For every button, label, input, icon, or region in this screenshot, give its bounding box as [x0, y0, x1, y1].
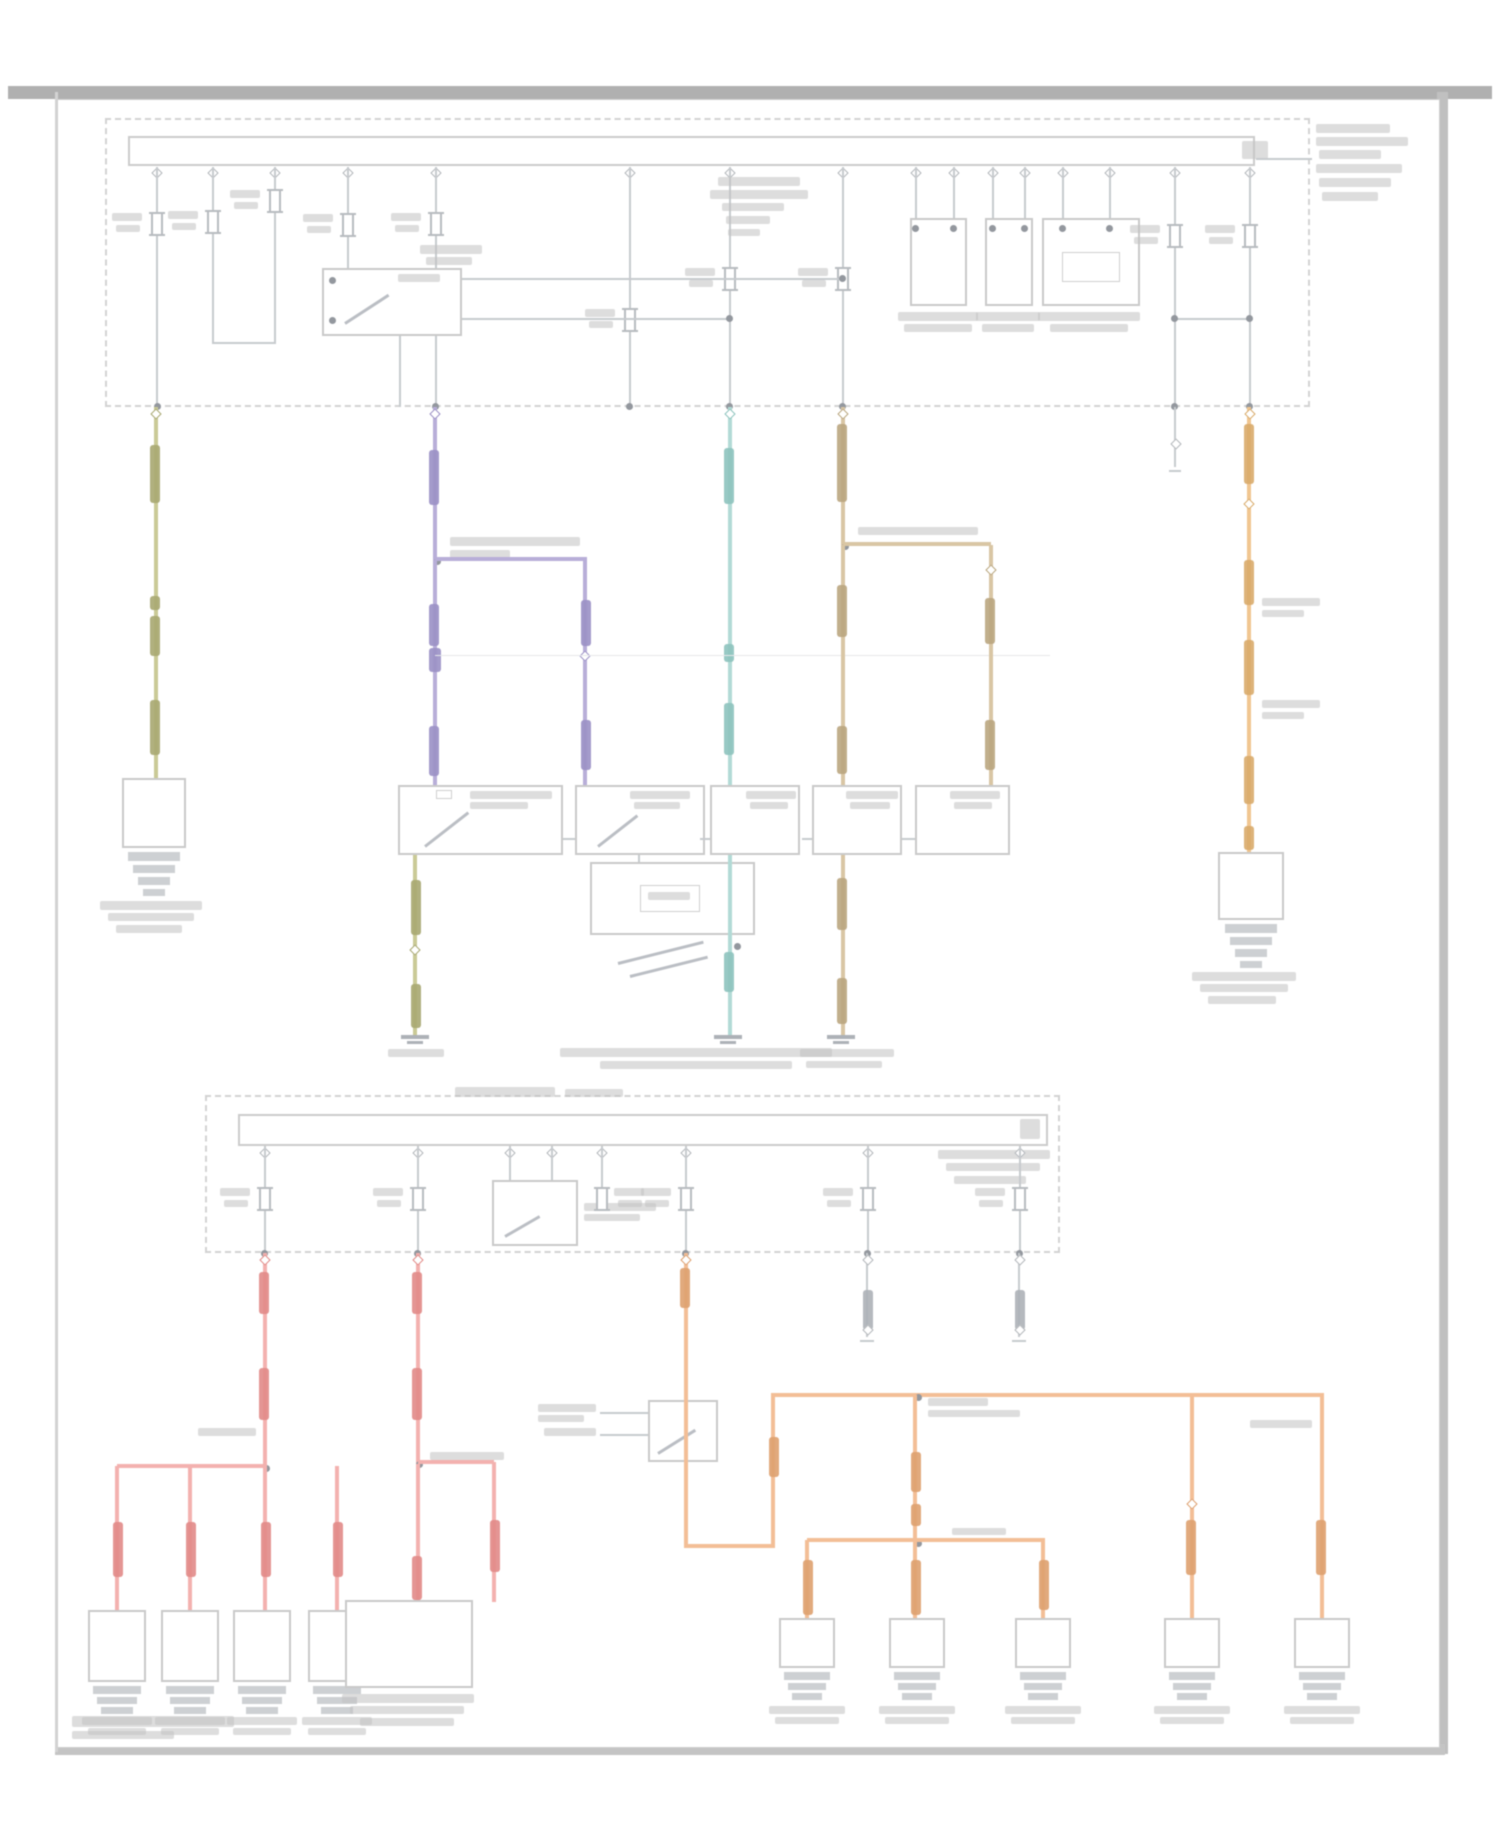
- ground-hatch: [1028, 1693, 1058, 1700]
- bottom-right-component: [1164, 1618, 1220, 1668]
- diagram-layer: [0, 0, 1500, 1828]
- wire-segment: [1174, 167, 1176, 407]
- illegible-label-text: [746, 791, 796, 799]
- wire-segment: [117, 1464, 267, 1468]
- wire-connector-sleeve: [581, 600, 591, 646]
- illegible-label-text: [689, 280, 713, 287]
- fuse-icon: [1014, 1187, 1026, 1211]
- wire-segment: [212, 167, 214, 212]
- wire-segment: [600, 1412, 648, 1414]
- wire-segment: [212, 234, 214, 344]
- illegible-label-text: [220, 1188, 250, 1196]
- splice-junction-dot: [1246, 315, 1253, 322]
- wire-connector-sleeve: [1244, 560, 1254, 605]
- illegible-label-text: [710, 190, 808, 199]
- fuse-icon: [680, 1187, 692, 1211]
- illegible-label-text: [198, 1428, 256, 1436]
- illegible-label-text: [634, 802, 680, 809]
- wire-segment: [407, 1041, 423, 1044]
- wire-connector-sleeve: [803, 1560, 813, 1615]
- illegible-label-text: [1011, 1717, 1075, 1724]
- illegible-label-text: [538, 1404, 596, 1412]
- illegible-label-text: [928, 1398, 988, 1406]
- wire-segment: [399, 336, 401, 407]
- splice-junction-dot: [839, 275, 846, 282]
- illegible-label-text: [1262, 712, 1304, 719]
- ground-hatch: [1020, 1672, 1066, 1680]
- ground-symbol: [827, 1035, 855, 1039]
- ground-hatch: [1225, 924, 1277, 933]
- wire-segment: [274, 167, 276, 189]
- illegible-label-text: [952, 1528, 1006, 1535]
- illegible-label-text: [395, 225, 419, 232]
- illegible-label-text: [589, 321, 613, 328]
- wire-segment: [902, 838, 915, 840]
- illegible-label-text: [560, 1048, 832, 1057]
- illegible-label-text: [360, 1718, 454, 1726]
- illegible-label-text: [1160, 1717, 1224, 1724]
- fuse-icon: [412, 1187, 424, 1211]
- wire-connector-sleeve: [150, 616, 160, 656]
- splice-junction-dot: [329, 317, 336, 324]
- fuse-icon: [207, 210, 219, 234]
- illegible-label-text: [750, 802, 788, 809]
- illegible-label-text: [641, 1188, 671, 1196]
- illegible-label-text: [1262, 700, 1320, 708]
- illegible-label-text: [426, 257, 472, 265]
- illegible-label-text: [950, 791, 1000, 799]
- wire-connector-sleeve: [837, 726, 847, 774]
- component-detail-box: [1062, 252, 1120, 282]
- wire-connector-sleeve: [724, 644, 734, 662]
- ground-hatch: [1177, 1693, 1207, 1700]
- fuse-icon: [624, 308, 636, 332]
- wire-segment: [274, 213, 276, 344]
- bottom-left-component: [161, 1610, 219, 1682]
- ground-hatch: [1169, 1672, 1215, 1680]
- illegible-label-text: [858, 527, 978, 535]
- wire-segment: [435, 557, 587, 561]
- bottom-left-component: [88, 1610, 146, 1682]
- wire-connector-sleeve: [490, 1520, 500, 1572]
- wire-connector-sleeve: [1244, 640, 1254, 695]
- wire-segment: [843, 542, 991, 546]
- wire-segment: [684, 1400, 688, 1462]
- wire-connector-sleeve: [1186, 1520, 1196, 1575]
- wire-segment: [462, 278, 842, 280]
- ground-hatch: [1307, 1693, 1337, 1700]
- illegible-label-text: [1319, 178, 1391, 187]
- illegible-label-text: [1038, 312, 1140, 321]
- ground-hatch: [1024, 1683, 1062, 1690]
- illegible-label-text: [726, 216, 770, 224]
- illegible-label-text: [728, 229, 760, 236]
- wire-segment: [629, 332, 631, 407]
- wire-connector-sleeve: [412, 1272, 422, 1314]
- wire-segment: [802, 838, 812, 840]
- illegible-label-text: [846, 791, 898, 799]
- illegible-label-text: [544, 1428, 596, 1436]
- wire-segment: [462, 318, 728, 320]
- wire-connector-sleeve: [911, 1452, 921, 1492]
- illegible-label-text: [350, 1706, 464, 1714]
- wire-connector-sleeve: [581, 720, 591, 770]
- ground-hatch: [792, 1693, 822, 1700]
- wire-segment: [1109, 167, 1111, 218]
- ground-hatch: [902, 1693, 932, 1700]
- wire-segment: [1256, 158, 1312, 160]
- illegible-label-text: [1154, 1706, 1230, 1714]
- wire-connector-sleeve: [724, 448, 734, 504]
- illegible-label-text: [600, 1061, 792, 1069]
- illegible-label-text: [1262, 598, 1320, 606]
- ground-hatch: [1235, 949, 1267, 957]
- wire-connector-sleeve: [1244, 826, 1254, 850]
- illegible-label-text: [470, 791, 552, 799]
- wire-connector-sleeve: [261, 1522, 271, 1577]
- ground-hatch: [1230, 937, 1272, 945]
- illegible-label-text: [1322, 192, 1378, 201]
- illegible-label-text: [1250, 1420, 1312, 1428]
- wire-segment: [1024, 167, 1026, 218]
- wire-connector-sleeve: [186, 1522, 196, 1577]
- ground-hatch: [138, 877, 170, 885]
- illegible-label-text: [1200, 984, 1288, 992]
- wire-connector-sleeve: [985, 720, 995, 770]
- wire-segment: [807, 1538, 1045, 1542]
- splice-junction-dot: [1059, 225, 1066, 232]
- wire-connector-sleeve: [680, 1268, 690, 1308]
- illegible-label-text: [227, 1717, 297, 1725]
- wire-segment: [418, 1460, 494, 1464]
- wire-segment: [638, 855, 640, 862]
- wire-connector-sleeve: [724, 952, 734, 992]
- illegible-label-text: [1020, 1119, 1040, 1139]
- illegible-label-text: [377, 1200, 401, 1207]
- illegible-label-text: [798, 268, 828, 276]
- wire-segment: [720, 1041, 736, 1044]
- illegible-label-text: [1316, 137, 1408, 146]
- top-bus-bar: [128, 136, 1255, 166]
- wire-connector-sleeve: [259, 1368, 269, 1420]
- splice-junction-dot: [912, 225, 919, 232]
- illegible-label-text: [645, 1200, 669, 1207]
- ground-symbol: [401, 1035, 429, 1039]
- illegible-label-text: [1316, 164, 1402, 173]
- fuse-icon: [430, 212, 442, 236]
- wire-segment: [601, 1146, 603, 1187]
- illegible-label-text: [1209, 237, 1233, 244]
- splice-junction-dot: [329, 277, 336, 284]
- illegible-label-text: [373, 1188, 403, 1196]
- ground-hatch: [1303, 1683, 1341, 1690]
- fuse-icon: [1244, 224, 1256, 248]
- wire-connector-sleeve: [113, 1522, 123, 1577]
- wire-segment: [600, 1434, 648, 1436]
- wire-connector-sleeve: [150, 700, 160, 755]
- illegible-label-text: [1005, 1706, 1081, 1714]
- illegible-label-text: [116, 225, 140, 232]
- wire-connector-sleeve: [150, 596, 160, 610]
- ground-symbol: [714, 1035, 742, 1039]
- wire-connector-sleeve: [412, 1556, 422, 1600]
- illegible-label-text: [769, 1706, 845, 1714]
- illegible-label-text: [618, 1200, 642, 1207]
- illegible-label-text: [823, 1188, 853, 1196]
- illegible-label-text: [979, 1200, 1003, 1207]
- illegible-label-text: [430, 1452, 504, 1460]
- wire-segment: [1320, 1395, 1324, 1620]
- illegible-label-text: [898, 312, 978, 321]
- wire-connector-sleeve: [259, 1272, 269, 1314]
- ground-hatch: [1173, 1683, 1211, 1690]
- illegible-label-text: [938, 1150, 1050, 1159]
- wire-segment: [156, 167, 158, 407]
- splice-junction-dot: [950, 225, 957, 232]
- illegible-label-text: [800, 1049, 894, 1057]
- illegible-label-text: [224, 1200, 248, 1207]
- bottom-right-component: [779, 1618, 835, 1668]
- fuse-icon: [596, 1187, 608, 1211]
- ground-hatch: [894, 1672, 940, 1680]
- illegible-label-text: [904, 324, 972, 332]
- illegible-label-text: [307, 226, 331, 233]
- illegible-label-text: [1290, 1717, 1354, 1724]
- splice-junction-dot: [734, 943, 741, 950]
- illegible-label-text: [100, 901, 202, 910]
- wire-connector-sleeve: [1316, 1520, 1326, 1575]
- illegible-label-text: [775, 1717, 839, 1724]
- center-relay-box: [322, 268, 462, 336]
- ground-hatch: [166, 1686, 214, 1694]
- splice-junction-dot: [1106, 225, 1113, 232]
- wire-connector-sleeve: [429, 604, 439, 646]
- right-component: [1218, 852, 1284, 920]
- ground-hatch: [174, 1707, 206, 1714]
- wire-segment: [771, 1393, 1324, 1397]
- illegible-label-text: [1208, 996, 1276, 1004]
- wire-connector-sleeve: [150, 445, 160, 503]
- wire-segment: [728, 855, 732, 1035]
- wire-segment: [684, 1544, 774, 1548]
- illegible-label-text: [308, 1728, 366, 1735]
- illegible-label-text: [1130, 225, 1160, 233]
- ground-hatch: [788, 1683, 826, 1690]
- illegible-label-text: [1316, 124, 1390, 133]
- illegible-label-text: [303, 214, 333, 222]
- splice-junction-dot: [1171, 315, 1178, 322]
- wire-connector-sleeve: [1039, 1560, 1049, 1610]
- illegible-label-text: [470, 802, 528, 809]
- ground-hatch: [246, 1707, 278, 1714]
- bottom-right-component: [889, 1618, 945, 1668]
- ground-hatch: [1240, 961, 1262, 968]
- page-top-edge: [8, 86, 1492, 99]
- bottom-left-component: [233, 1610, 291, 1682]
- component-detail-box: [436, 790, 452, 799]
- wire-connector-sleeve: [429, 648, 441, 672]
- fuse-icon: [862, 1187, 874, 1211]
- fuse-icon: [151, 212, 163, 236]
- illegible-label-text: [584, 1214, 640, 1221]
- wire-segment: [1062, 167, 1064, 218]
- illegible-label-text: [1192, 972, 1296, 981]
- wire-connector-sleeve: [769, 1437, 779, 1477]
- wire-segment: [629, 167, 631, 308]
- ground-hatch: [93, 1686, 141, 1694]
- illegible-label-text: [565, 1089, 623, 1097]
- illegible-label-text: [420, 245, 482, 254]
- splice-junction-dot: [626, 403, 633, 410]
- wire-segment: [1174, 318, 1250, 320]
- wire-segment: [563, 838, 575, 840]
- wire-segment: [509, 1146, 511, 1180]
- wire-connector-sleeve: [911, 1560, 921, 1615]
- splice-junction-dot: [989, 225, 996, 232]
- bottom-right-component: [1015, 1618, 1071, 1668]
- wire-segment: [347, 237, 349, 268]
- illegible-label-text: [1262, 610, 1304, 617]
- ground-hatch: [101, 1707, 133, 1714]
- wire-connector-sleeve: [429, 450, 439, 505]
- splice-junction-dot: [1021, 225, 1028, 232]
- wire-segment: [347, 167, 349, 213]
- ground-hatch: [784, 1672, 830, 1680]
- wire-segment: [1249, 167, 1251, 407]
- illegible-label-text: [885, 1717, 949, 1724]
- illegible-label-text: [450, 537, 580, 546]
- wire-segment: [953, 167, 955, 218]
- wire-segment: [833, 1041, 849, 1044]
- illegible-label-text: [1319, 150, 1381, 159]
- wire-connector-sleeve: [411, 984, 421, 1028]
- ground-hatch: [97, 1697, 137, 1704]
- illegible-label-text: [954, 1176, 1026, 1184]
- illegible-label-text: [1050, 324, 1128, 332]
- ground-hatch: [321, 1707, 353, 1714]
- illegible-label-text: [614, 1188, 644, 1196]
- left-component: [122, 778, 186, 848]
- wire-connector-sleeve: [1244, 756, 1254, 804]
- illegible-label-text: [172, 223, 196, 230]
- ground-hatch: [1299, 1672, 1345, 1680]
- large-bottom-component: [345, 1600, 473, 1688]
- illegible-label-text: [946, 1163, 1040, 1171]
- fuse-icon: [259, 1187, 271, 1211]
- illegible-label-text: [718, 177, 800, 186]
- wire-segment: [1169, 470, 1181, 472]
- illegible-label-text: [975, 1188, 1005, 1196]
- illegible-label-text: [982, 324, 1034, 332]
- wire-connector-sleeve: [411, 880, 421, 935]
- ground-hatch: [170, 1697, 210, 1704]
- wire-connector-sleeve: [911, 1504, 921, 1526]
- footer-page-label: [72, 1716, 234, 1727]
- wire-connector-sleeve: [1244, 424, 1254, 484]
- illegible-label-text: [116, 925, 182, 933]
- illegible-label-text: [1134, 237, 1158, 244]
- illegible-label-text: [398, 274, 440, 282]
- wire-segment: [435, 655, 1050, 656]
- ground-hatch: [238, 1686, 286, 1694]
- illegible-label-text: [630, 791, 690, 799]
- relay-box: [910, 218, 967, 306]
- illegible-label-text: [954, 802, 992, 809]
- illegible-label-text: [108, 913, 194, 921]
- lower-bus-bar: [238, 1114, 1048, 1146]
- wiring-diagram-page: [0, 0, 1500, 1828]
- ground-hatch: [898, 1683, 936, 1690]
- wire-connector-sleeve: [837, 424, 847, 502]
- illegible-label-text: [928, 1410, 1020, 1417]
- wire-connector-sleeve: [724, 703, 734, 755]
- wire-segment: [684, 1462, 688, 1548]
- bottom-right-component: [1294, 1618, 1350, 1668]
- wire-segment: [700, 838, 710, 840]
- wire-connector-sleeve: [985, 598, 995, 644]
- wire-connector-sleeve: [333, 1522, 343, 1577]
- wire-segment: [212, 342, 276, 344]
- illegible-label-text: [685, 268, 715, 276]
- illegible-label-text: [722, 203, 784, 211]
- illegible-label-text: [648, 892, 690, 900]
- bus-connector-label: [1242, 141, 1268, 159]
- illegible-label-text: [827, 1200, 851, 1207]
- illegible-label-text: [233, 1728, 291, 1735]
- splice-junction-dot: [726, 315, 733, 322]
- wire-segment: [1174, 407, 1176, 467]
- illegible-label-text: [342, 1694, 474, 1703]
- illegible-label-text: [538, 1415, 584, 1422]
- illegible-label-text: [1205, 225, 1235, 233]
- illegible-label-text: [879, 1706, 955, 1714]
- wire-segment: [915, 167, 917, 218]
- illegible-label-text: [234, 202, 258, 209]
- fuse-icon: [342, 213, 354, 237]
- illegible-label-text: [230, 190, 260, 198]
- wire-connector-sleeve: [837, 585, 847, 637]
- ground-hatch: [143, 889, 165, 896]
- wire-segment: [992, 167, 994, 218]
- illegible-label-text: [388, 1049, 444, 1057]
- wire-segment: [860, 1340, 874, 1342]
- illegible-label-text: [850, 802, 890, 809]
- fuse-icon: [1169, 224, 1181, 248]
- illegible-label-text: [976, 312, 1040, 321]
- illegible-label-text: [806, 1061, 882, 1068]
- wire-segment: [551, 1146, 553, 1180]
- illegible-label-text: [802, 280, 826, 287]
- fuse-icon: [269, 189, 281, 213]
- illegible-label-text: [168, 211, 198, 219]
- ground-hatch: [128, 852, 180, 861]
- illegible-label-text: [1284, 1706, 1360, 1714]
- wire-connector-sleeve: [837, 878, 847, 930]
- wire-connector-sleeve: [429, 726, 439, 776]
- wire-connector-sleeve: [837, 978, 847, 1024]
- illegible-label-text: [391, 213, 421, 221]
- illegible-label-text: [112, 213, 142, 221]
- ground-hatch: [133, 865, 175, 873]
- illegible-label-text: [585, 309, 615, 317]
- footer-page-label: [72, 1731, 174, 1739]
- wire-connector-sleeve: [412, 1368, 422, 1420]
- wire-segment: [1012, 1340, 1026, 1342]
- illegible-label-text: [455, 1087, 555, 1097]
- ground-hatch: [242, 1697, 282, 1704]
